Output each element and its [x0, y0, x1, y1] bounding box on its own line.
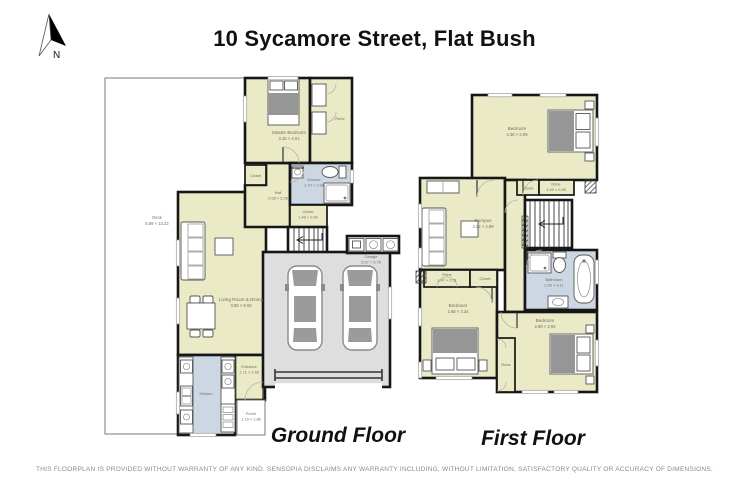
laundry-tub-icon [353, 241, 361, 248]
deck-dims: 5.09 × 13.22 [145, 221, 169, 226]
living-sofa [181, 222, 205, 280]
master-bedroom-label: Master Bedroom [272, 130, 306, 135]
bedroom-right-label: Bedroom [536, 318, 555, 323]
bedroom-top-bed [548, 101, 594, 161]
bathroom-label: Bathroom [546, 277, 563, 282]
entrance-room [235, 355, 265, 400]
closet-dims: 1.46 × 0.99 [298, 215, 318, 220]
bedroom-right-dims: 2.69 × 2.92 [534, 324, 556, 329]
disclaimer-text: THIS FLOORPLAN IS PROVIDED WITHOUT WARRA… [0, 466, 749, 473]
entrance-dims: 1.71 × 1.68 [239, 370, 259, 375]
toilet-icon [339, 166, 346, 178]
robe-mid-label: Robe [501, 362, 510, 367]
bedroom-top-label: Bedroom [508, 126, 527, 131]
closet-left-label: Closet [479, 276, 491, 281]
kitchen-label: Kitchen [200, 391, 213, 396]
garage-label: Garage [365, 254, 378, 259]
bathroom-dims: 2.69 × 3.11 [544, 283, 563, 288]
deck-label: Deck [152, 215, 162, 220]
shower-icon [324, 183, 350, 203]
robe-left-dims: 1.47 × 0.51 [437, 278, 457, 283]
ensuite-label: Ensuite [308, 177, 321, 182]
porch-dims: 1.15 × 1.86 [241, 417, 261, 422]
robe-top-dims: 1.65 × 0.95 [546, 187, 566, 192]
master-bed [268, 79, 299, 125]
closet-top-label: Closet [522, 186, 534, 191]
bedroom-left-dims: 2.88 × 3.34 [447, 309, 469, 314]
ensuite-dims: 1.70 × 1.98 [304, 183, 324, 188]
page-title: 10 Sycamore Street, Flat Bush [0, 26, 749, 52]
living-dims: 3.88 × 8.08 [230, 303, 252, 308]
floorplan-page: 10 Sycamore Street, Flat Bush N [0, 0, 749, 495]
robe-top-label: Robe [551, 182, 560, 187]
car-icon [285, 266, 325, 350]
robe-label: Robe [335, 116, 344, 121]
first-floor-caption: First Floor [443, 427, 623, 451]
bedroom-top-dims: 4.36 × 2.99 [506, 132, 528, 137]
first-floor-plan: Bedroom 4.36 × 2.99 Closet Robe 1.65 × 0… [413, 88, 605, 400]
vanity-icon [548, 296, 568, 308]
north-arrow-icon: N [36, 13, 70, 61]
stairs-first [522, 200, 572, 248]
robe-left-label: Robe [442, 272, 451, 277]
ground-floor-plan: Deck 5.09 × 13.22 Master Bedroom 3.16 × … [100, 70, 402, 442]
bedroom-left-label: Bedroom [449, 303, 468, 308]
compass-label: N [53, 50, 60, 61]
coffee-table [215, 238, 233, 255]
entrance-label: Entrance [241, 364, 257, 369]
ground-floor-caption: Ground Floor [238, 424, 438, 448]
porch-label: Porch [246, 411, 256, 416]
shower-icon [528, 253, 551, 273]
rumpus-dims: 4.22 × 4.89 [472, 224, 494, 229]
car-icon [340, 266, 380, 350]
master-bedroom-dims: 3.16 × 4.01 [278, 136, 300, 141]
hall-label: Hall [275, 190, 282, 195]
living-label: Living Room & Dining [219, 297, 264, 302]
bedroom-left-bed [423, 328, 487, 374]
garage-dims: 5.57 × 5.78 [361, 260, 381, 265]
hall-dims: 2.08 × 2.28 [268, 196, 288, 201]
rumpus-label: Rumpus [474, 218, 492, 223]
closet-label: Closet [302, 209, 314, 214]
hall-closet-label: Closet [250, 173, 262, 178]
